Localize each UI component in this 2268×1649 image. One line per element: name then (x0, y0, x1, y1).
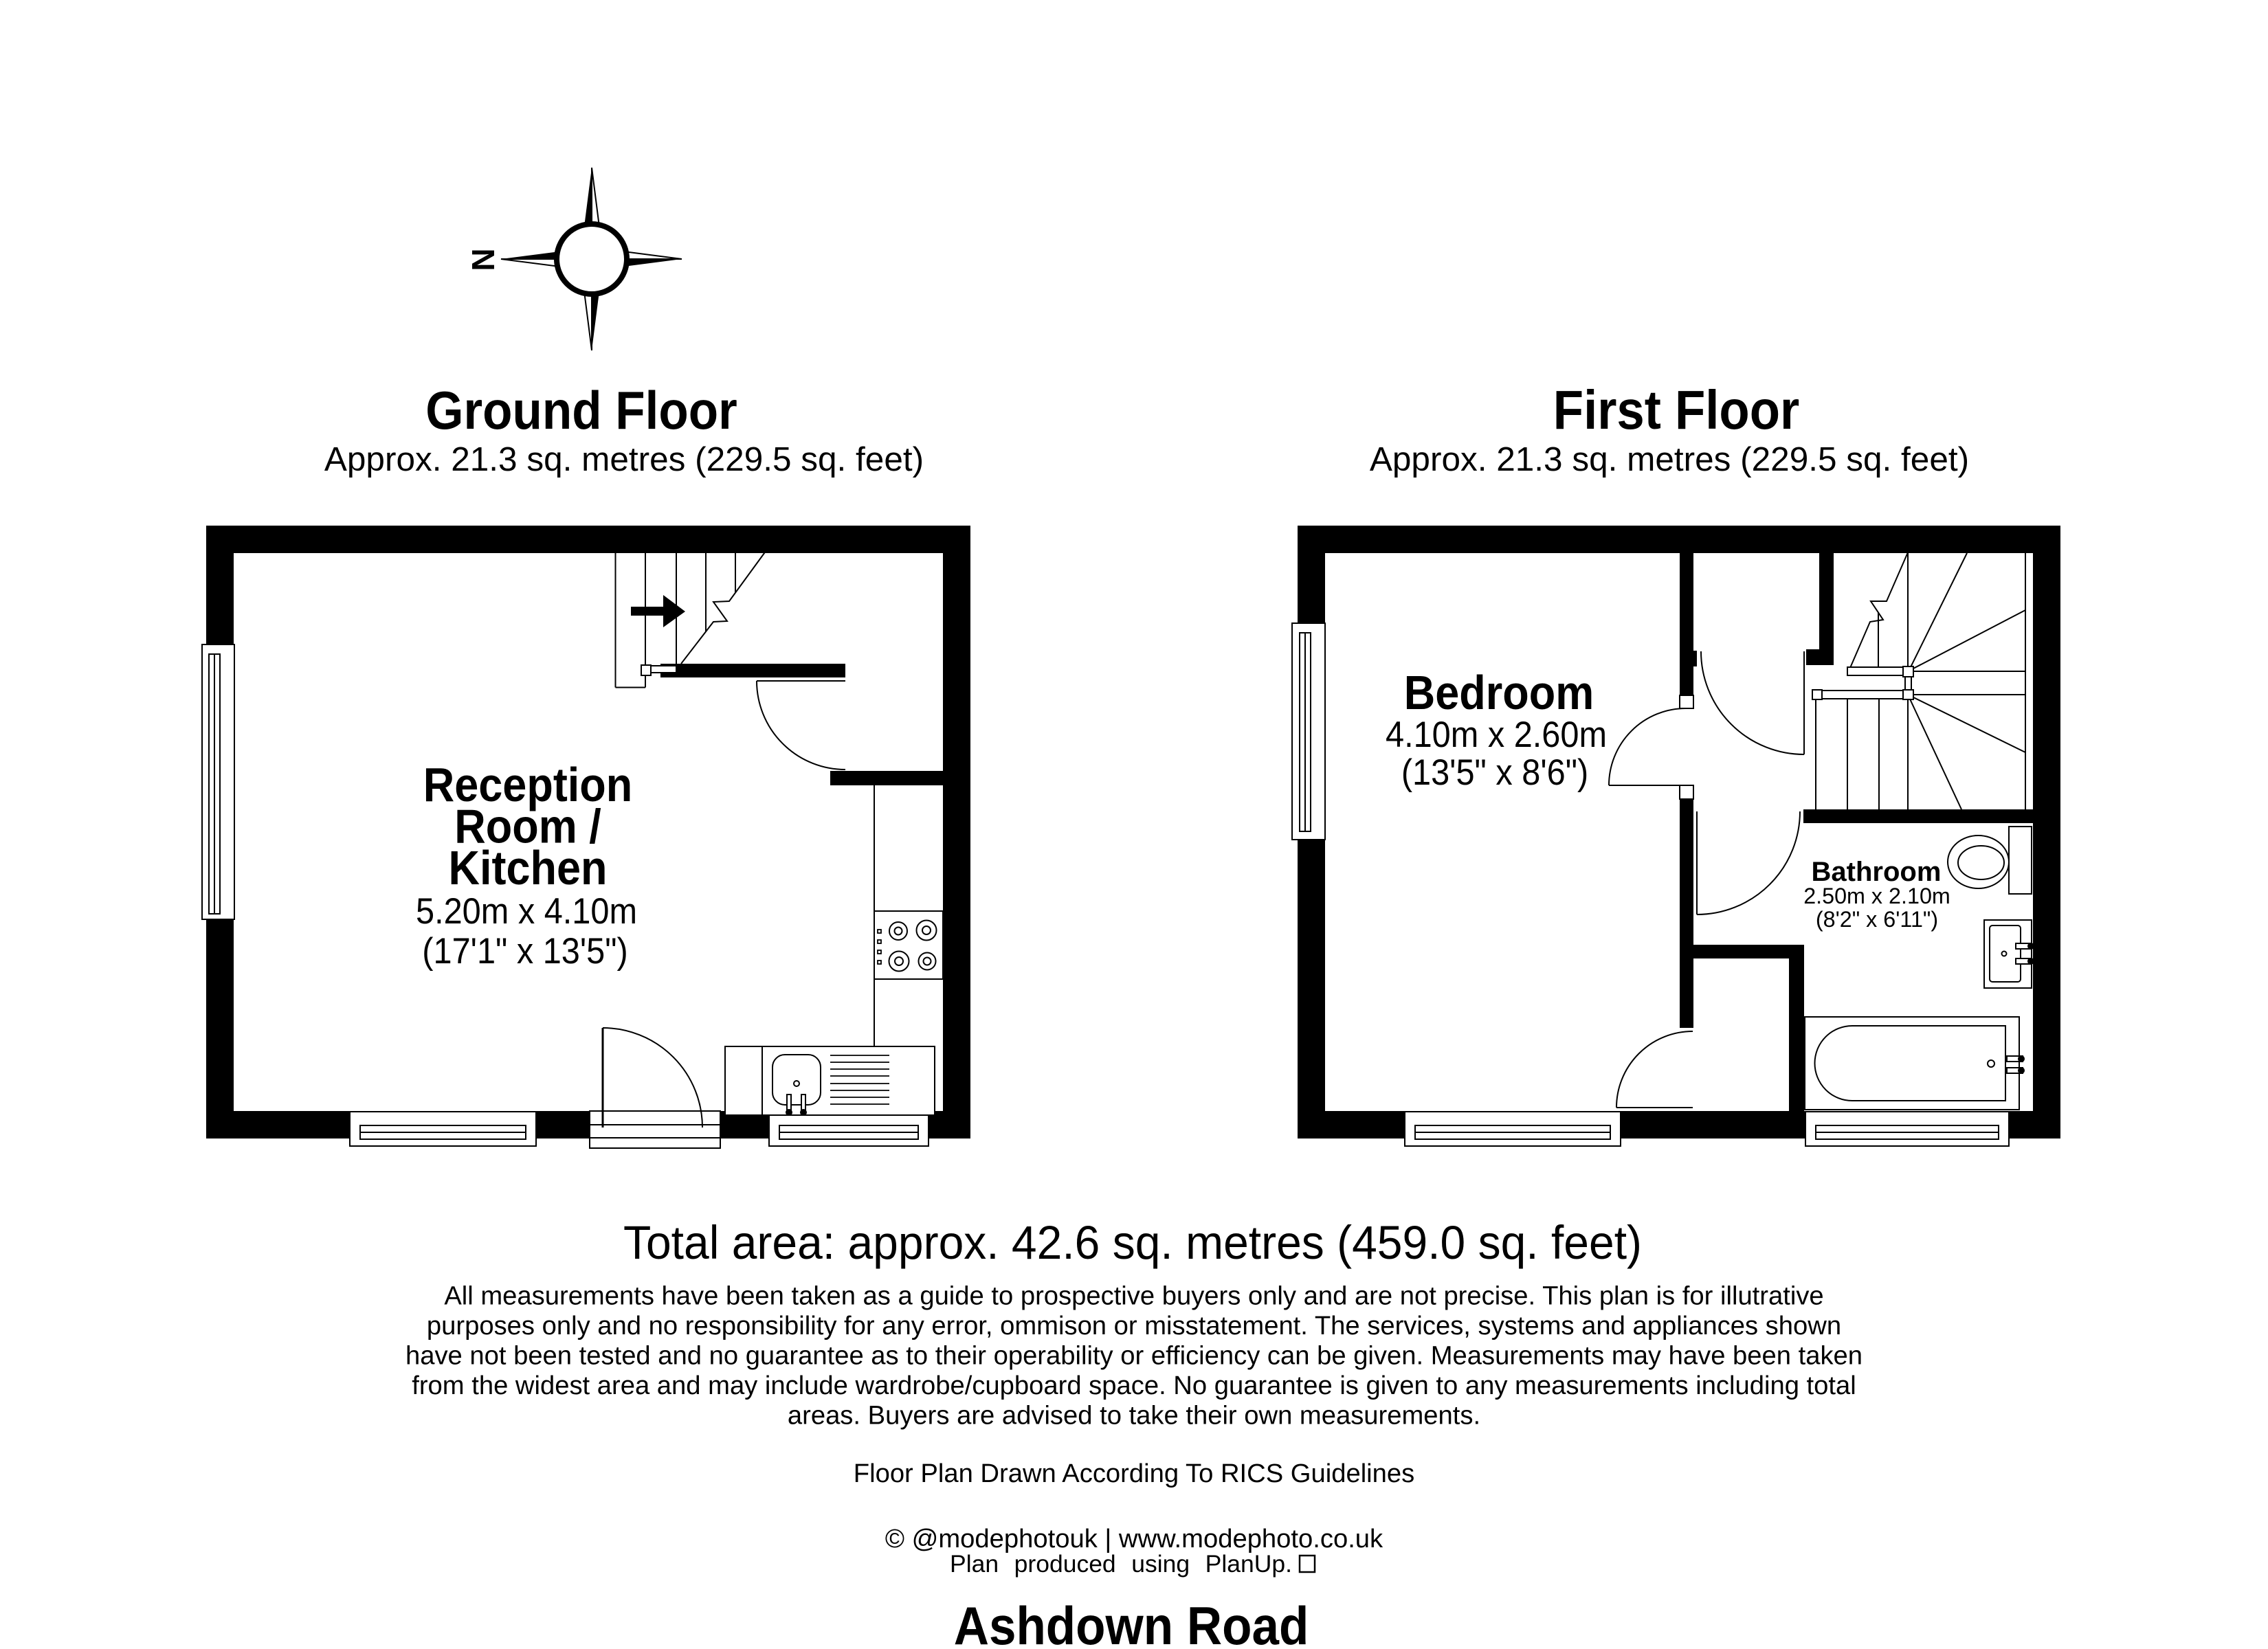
svg-text:Bathroom: Bathroom (1812, 857, 1942, 887)
svg-text:from the widest area and may i: from the widest area and may include war… (412, 1371, 1856, 1400)
svg-text:Kitchen: Kitchen (448, 842, 607, 895)
svg-text:purposes only and no responsib: purposes only and no responsibility for … (427, 1311, 1841, 1340)
svg-text:Ground Floor: Ground Floor (425, 380, 737, 440)
svg-text:All measurements have been tak: All measurements have been taken as a gu… (444, 1281, 1823, 1311)
svg-text:Bedroom: Bedroom (1404, 666, 1594, 719)
svg-text:2.50m x 2.10m: 2.50m x 2.10m (1803, 884, 1950, 908)
svg-text:(8'2" x 6'11"): (8'2" x 6'11") (1816, 907, 1938, 932)
svg-text:Ashdown Road: Ashdown Road (954, 1595, 1309, 1649)
svg-text:(13'5" x 8'6"): (13'5" x 8'6") (1401, 752, 1588, 792)
svg-text:Total area: approx. 42.6 sq. m: Total area: approx. 42.6 sq. metres (459… (623, 1217, 1642, 1269)
svg-text:4.10m x 2.60m: 4.10m x 2.60m (1386, 714, 1607, 754)
svg-text:Floor Plan Drawn According To: Floor Plan Drawn According To RICS Guide… (854, 1459, 1414, 1488)
svg-text:areas. Buyers are advised to t: areas. Buyers are advised to take their … (788, 1401, 1480, 1431)
svg-text:First Floor: First Floor (1553, 380, 1799, 441)
svg-text:Approx. 21.3 sq. metres (229.5: Approx. 21.3 sq. metres (229.5 sq. feet) (324, 440, 924, 478)
svg-text:5.20m x 4.10m: 5.20m x 4.10m (416, 890, 637, 931)
svg-text:have not been tested and no gu: have not been tested and no guarantee as… (405, 1341, 1863, 1371)
svg-text:© @modephotouk | www.modephoto: © @modephotouk | www.modephoto.co.uk (885, 1524, 1383, 1553)
svg-text:(17'1" x 13'5"): (17'1" x 13'5") (422, 930, 627, 971)
svg-text:Approx. 21.3 sq. metres (229.5: Approx. 21.3 sq. metres (229.5 sq. feet) (1370, 440, 1969, 478)
svg-text:Plan produced using PlanUp.: Plan produced using PlanUp. (950, 1550, 1292, 1578)
svg-text:N: N (465, 248, 501, 271)
